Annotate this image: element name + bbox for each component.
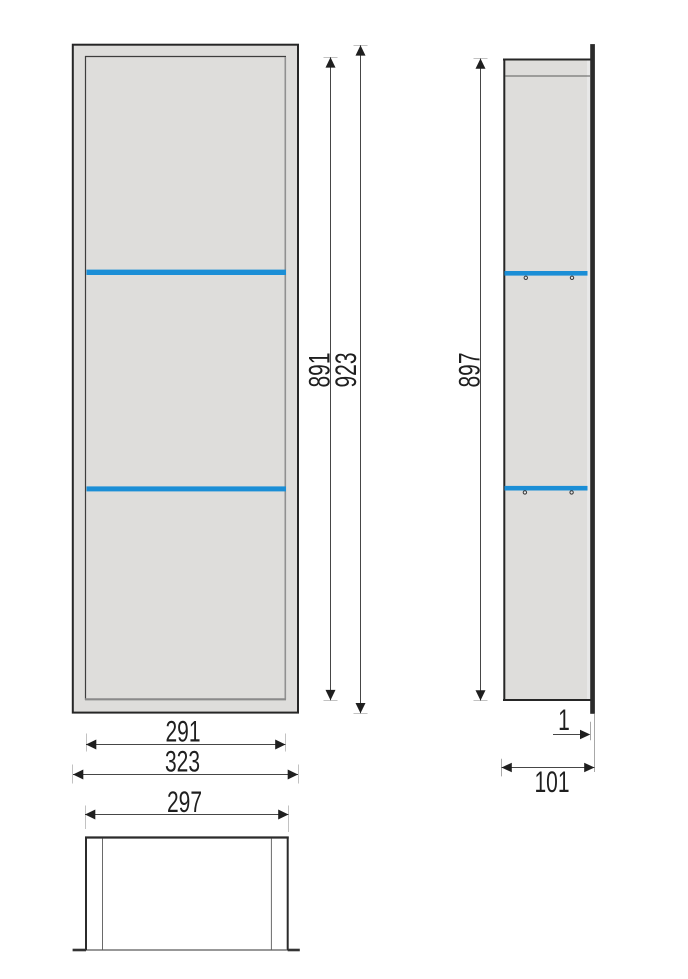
svg-text:297: 297 (167, 787, 202, 819)
svg-text:1: 1 (558, 705, 570, 737)
svg-text:291: 291 (165, 716, 200, 748)
svg-text:897: 897 (454, 352, 486, 387)
svg-text:923: 923 (331, 352, 363, 387)
svg-text:101: 101 (534, 767, 569, 799)
svg-text:323: 323 (165, 746, 200, 778)
